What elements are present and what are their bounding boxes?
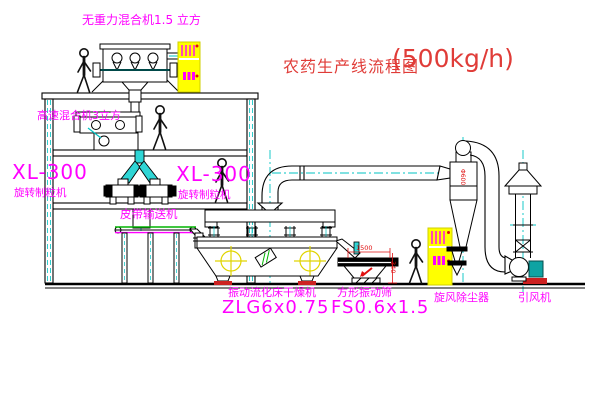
granulator-right-drawing xyxy=(138,179,176,204)
fluidbed-dryer-drawing xyxy=(197,210,360,285)
label-screen-model: FS0.6x1.5 xyxy=(331,299,429,317)
flow-diagram: 农药生产线流程图 (500kg/h) 无重力混合机1.5 立方 高速混合机3立方… xyxy=(0,0,600,403)
control-cabinet-top xyxy=(178,42,200,92)
control-cabinet-ground xyxy=(428,228,452,285)
label-dryer-model: ZLG6x0.75 xyxy=(222,299,330,317)
gravity-mixer-drawing xyxy=(92,44,180,114)
person-figure xyxy=(154,106,167,149)
label-belt-conveyor: 皮带输送机 xyxy=(120,209,178,221)
belt-conveyor-drawing xyxy=(115,227,216,283)
label-cyclone: 旋风除尘器 xyxy=(434,292,489,303)
diagram-capacity: (500kg/h) xyxy=(392,44,514,73)
dim-screen-height: 340 xyxy=(390,261,397,273)
person-figure xyxy=(78,49,91,92)
dim-cyclone-diameter: Φ600 xyxy=(459,169,465,185)
person-figure xyxy=(410,240,423,283)
fan-drawing xyxy=(505,163,547,284)
label-granulator-right-name: 旋转制粒机 xyxy=(178,190,231,201)
label-granulator-right-model: XL-300 xyxy=(176,164,252,184)
label-granulator-left-model: XL-300 xyxy=(12,162,88,182)
label-granulator-left-name: 旋转制粒机 xyxy=(14,188,67,199)
dim-screen-length: 1500 xyxy=(356,245,373,252)
granulator-left-drawing xyxy=(104,179,142,204)
label-gravity-mixer: 无重力混合机1.5 立方 xyxy=(82,14,201,26)
label-fan: 引风机 xyxy=(518,292,551,303)
label-highspeed-mixer: 高速混合机3立方 xyxy=(37,110,121,121)
